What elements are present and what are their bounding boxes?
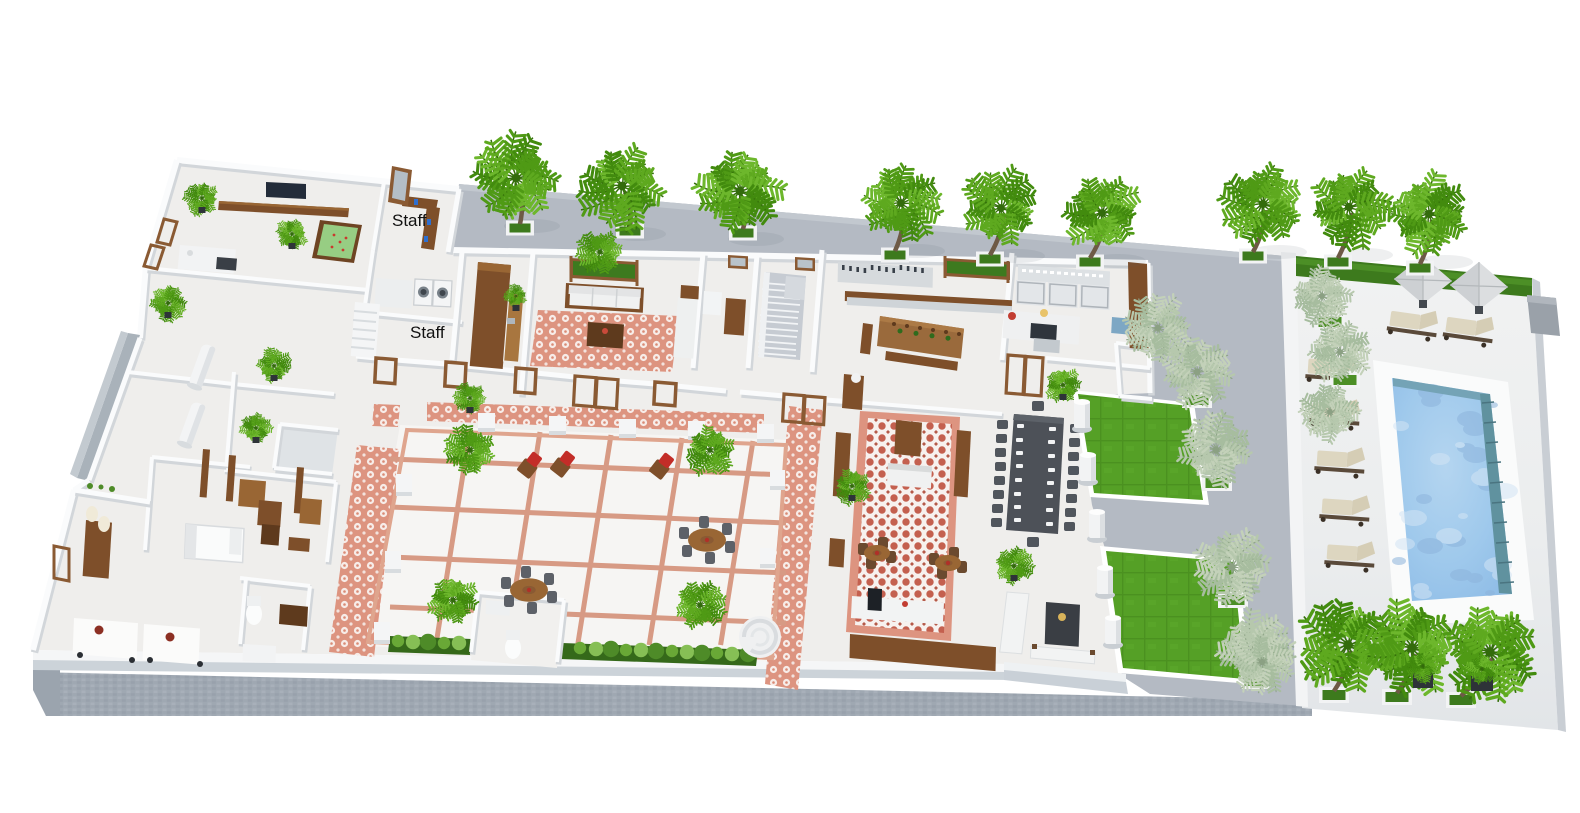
svg-text:Staff: Staff	[410, 323, 445, 342]
svg-text:Staff: Staff	[392, 211, 427, 230]
